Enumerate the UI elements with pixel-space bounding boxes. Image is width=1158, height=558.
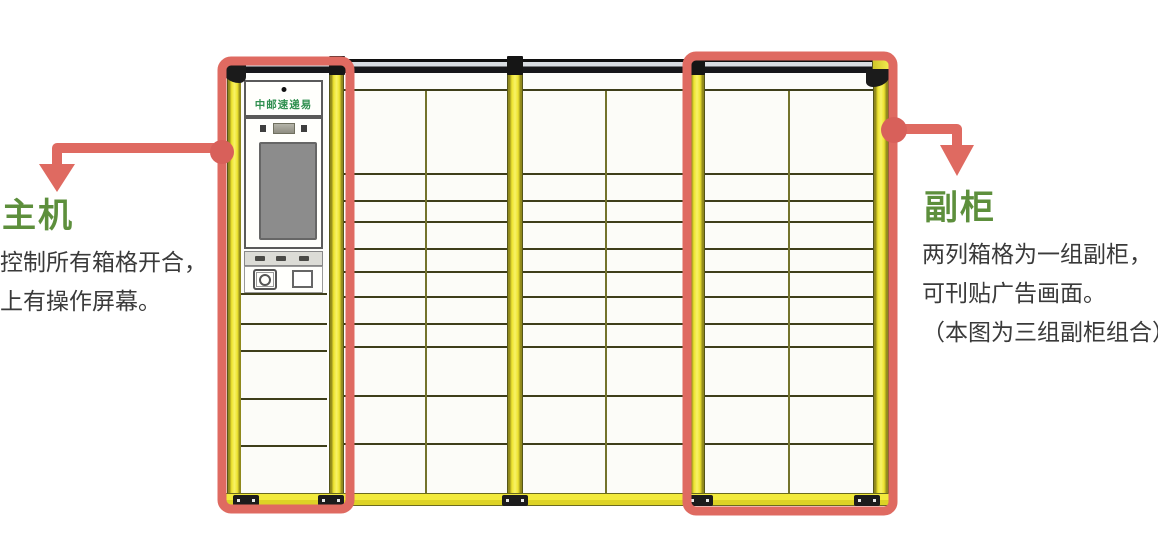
frame-post xyxy=(228,72,241,493)
speaker-icon xyxy=(260,125,266,132)
locker-cell xyxy=(427,298,509,325)
locker-cell xyxy=(607,175,690,202)
locker-cell xyxy=(522,223,605,250)
locker-columns xyxy=(522,91,690,493)
vent-slot-icon xyxy=(255,256,265,261)
locker-cell xyxy=(343,202,425,223)
locker-column xyxy=(790,91,874,493)
locker-columns xyxy=(704,91,874,493)
locker-cell xyxy=(343,223,425,250)
foot-bracket xyxy=(233,495,259,506)
locker-cell xyxy=(522,202,605,223)
locker-cell xyxy=(522,397,605,445)
locker-column xyxy=(343,91,427,493)
locker-cell xyxy=(790,348,874,397)
locker-cell xyxy=(704,397,788,445)
rail-mount-block xyxy=(689,56,705,75)
main-unit-title: 主机 xyxy=(2,196,207,236)
vent-bar xyxy=(244,251,323,266)
aux-cabinet-desc-line: 可刊贴广告画面。 xyxy=(922,279,1158,307)
device-panel xyxy=(244,266,323,293)
scanner-camera-icon xyxy=(253,269,277,290)
locker-cell xyxy=(704,348,788,397)
frame-post xyxy=(508,72,522,493)
cabinet-top-rail xyxy=(228,59,888,73)
aux-cabinet-group xyxy=(704,73,874,493)
locker-cell xyxy=(704,445,788,493)
locker-columns xyxy=(343,91,508,493)
aux-cabinet-arrowhead-icon xyxy=(940,145,974,176)
locker-cell xyxy=(790,325,874,348)
locker-cell xyxy=(607,250,690,273)
top-strip-panel xyxy=(704,73,874,91)
vent-slot-icon xyxy=(276,256,286,261)
top-strip-panel xyxy=(522,73,690,91)
main-unit-panel: 中邮速递易 xyxy=(241,73,327,493)
locker-cell xyxy=(522,175,605,202)
locker-cell xyxy=(343,325,425,348)
main-unit-arrowhead-icon xyxy=(39,164,75,192)
aux-cabinet-label: 副柜 两列箱格为一组副柜， 可刊贴广告画面。 （本图为三组副柜组合） xyxy=(922,188,1158,357)
locker-column xyxy=(427,91,509,493)
locker-cell xyxy=(790,298,874,325)
indicator-dot-icon xyxy=(281,87,286,92)
aux-cabinet-title: 副柜 xyxy=(924,188,1158,228)
locker-cell xyxy=(607,202,690,223)
main-unit-compartment xyxy=(241,325,327,352)
locker-cell xyxy=(704,298,788,325)
locker-column xyxy=(522,91,607,493)
locker-cell xyxy=(427,91,509,175)
camera-dome-icon xyxy=(222,62,246,83)
main-unit-compartment xyxy=(241,400,327,447)
rail-mount-block xyxy=(507,56,523,75)
aux-cabinet-desc-line: 两列箱格为一组副柜， xyxy=(922,240,1158,268)
locker-cell xyxy=(427,175,509,202)
locker-cell xyxy=(704,223,788,250)
locker-cell xyxy=(427,325,509,348)
main-unit-compartment xyxy=(241,295,327,325)
control-console xyxy=(244,117,323,249)
foot-bracket xyxy=(318,495,344,506)
locker-cell xyxy=(607,348,690,397)
locker-cell xyxy=(704,273,788,298)
locker-cell xyxy=(790,273,874,298)
locker-cell xyxy=(522,298,605,325)
status-display xyxy=(273,123,295,134)
locker-cell xyxy=(607,325,690,348)
locker-cell xyxy=(522,445,605,493)
locker-cell xyxy=(427,202,509,223)
foot-bracket xyxy=(687,495,713,506)
main-unit-desc-line: 控制所有箱格开合， xyxy=(0,248,207,276)
aux-cabinet-group xyxy=(343,73,508,493)
locker-cell xyxy=(607,298,690,325)
main-unit-desc-line: 上有操作屏幕。 xyxy=(0,287,207,315)
locker-cell xyxy=(607,397,690,445)
locker-cell xyxy=(704,325,788,348)
locker-cell xyxy=(607,273,690,298)
locker-cell xyxy=(790,223,874,250)
vent-slot-icon xyxy=(299,256,309,261)
locker-cell xyxy=(343,445,425,493)
locker-cell xyxy=(607,445,690,493)
locker-cell xyxy=(607,91,690,175)
main-unit-compartment xyxy=(241,447,327,495)
locker-column xyxy=(607,91,690,493)
locker-cell xyxy=(427,273,509,298)
locker-cell xyxy=(522,325,605,348)
rail-mount-block xyxy=(329,56,345,75)
aux-cabinet-desc-line: （本图为三组副柜组合） xyxy=(922,318,1158,346)
locker-column xyxy=(704,91,790,493)
locker-cell xyxy=(607,223,690,250)
locker-cell xyxy=(522,273,605,298)
locker-cell xyxy=(790,445,874,493)
locker-cell xyxy=(704,250,788,273)
frame-post xyxy=(330,72,343,493)
locker-cell xyxy=(704,202,788,223)
main-unit-label: 主机 控制所有箱格开合， 上有操作屏幕。 xyxy=(0,196,207,326)
locker-cell xyxy=(522,91,605,175)
locker-cell xyxy=(343,348,425,397)
locker-cell xyxy=(704,91,788,175)
locker-cell xyxy=(427,348,509,397)
locker-cell xyxy=(343,397,425,445)
locker-cell xyxy=(343,298,425,325)
frame-post xyxy=(690,72,704,493)
locker-cell xyxy=(427,250,509,273)
aux-cabinet-arrow xyxy=(894,129,957,147)
main-unit-arrow xyxy=(57,148,222,166)
locker-cell xyxy=(790,91,874,175)
locker-cell xyxy=(522,250,605,273)
aux-cabinet-group xyxy=(522,73,690,493)
speaker-icon xyxy=(301,125,307,132)
locker-cell xyxy=(343,250,425,273)
locker-cell xyxy=(343,273,425,298)
top-strip-panel xyxy=(343,73,508,91)
locker-cell xyxy=(790,175,874,202)
locker-cell xyxy=(790,202,874,223)
foot-bracket xyxy=(502,495,528,506)
locker-cell xyxy=(790,397,874,445)
brand-text: 中邮速递易 xyxy=(246,97,321,112)
locker-cell xyxy=(343,175,425,202)
locker-cell xyxy=(427,445,509,493)
frame-post xyxy=(874,72,888,493)
card-slot-icon xyxy=(292,270,313,288)
foot-bracket xyxy=(854,495,880,506)
locker-cell xyxy=(343,91,425,175)
diagram-canvas: 中邮速递易 主机 控制所有箱格开合， 上有操作屏幕 xyxy=(0,0,1158,558)
main-unit-compartment xyxy=(241,352,327,400)
locker-cell xyxy=(522,348,605,397)
brand-header-box: 中邮速递易 xyxy=(244,80,323,117)
locker-cell xyxy=(427,223,509,250)
locker-cell xyxy=(427,397,509,445)
touch-screen[interactable] xyxy=(259,142,317,240)
locker-cell xyxy=(790,250,874,273)
locker-cell xyxy=(704,175,788,202)
